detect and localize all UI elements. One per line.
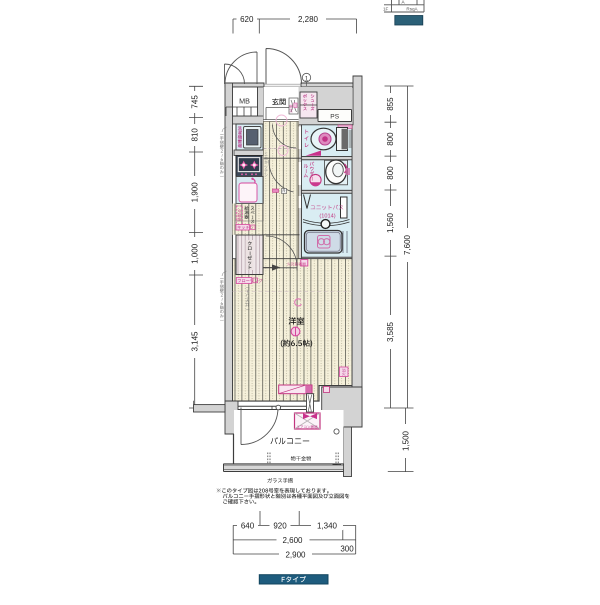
svg-text:1: 1 (305, 75, 309, 82)
svg-text:2,600: 2,600 (282, 536, 303, 545)
svg-text:(1014): (1014) (319, 214, 335, 220)
svg-text:920: 920 (273, 522, 287, 531)
svg-text:3,145: 3,145 (190, 331, 199, 352)
svg-text:745: 745 (190, 95, 199, 109)
svg-text:855: 855 (386, 97, 395, 111)
svg-text:1F: 1F (383, 6, 389, 11)
svg-text:RsqA: RsqA (406, 7, 418, 12)
svg-text:3,585: 3,585 (386, 321, 395, 342)
svg-text:1,900: 1,900 (190, 182, 199, 203)
svg-text:1,340: 1,340 (317, 522, 338, 531)
svg-text:640: 640 (241, 522, 255, 531)
svg-text:MB: MB (239, 97, 250, 106)
svg-text:1,000: 1,000 (190, 243, 199, 264)
svg-text:620: 620 (240, 15, 254, 24)
svg-text:300: 300 (340, 545, 354, 554)
svg-text:810: 810 (190, 128, 199, 142)
svg-text:800: 800 (386, 132, 395, 146)
svg-text:800: 800 (386, 166, 395, 180)
svg-text:7,600: 7,600 (403, 234, 412, 255)
svg-text:1,500: 1,500 (401, 430, 410, 451)
svg-text:R: R (282, 189, 285, 194)
svg-text:2,900: 2,900 (285, 550, 306, 559)
svg-text:2,280: 2,280 (298, 15, 319, 24)
svg-text:1,560: 1,560 (386, 212, 395, 233)
svg-text:PS: PS (330, 113, 339, 120)
